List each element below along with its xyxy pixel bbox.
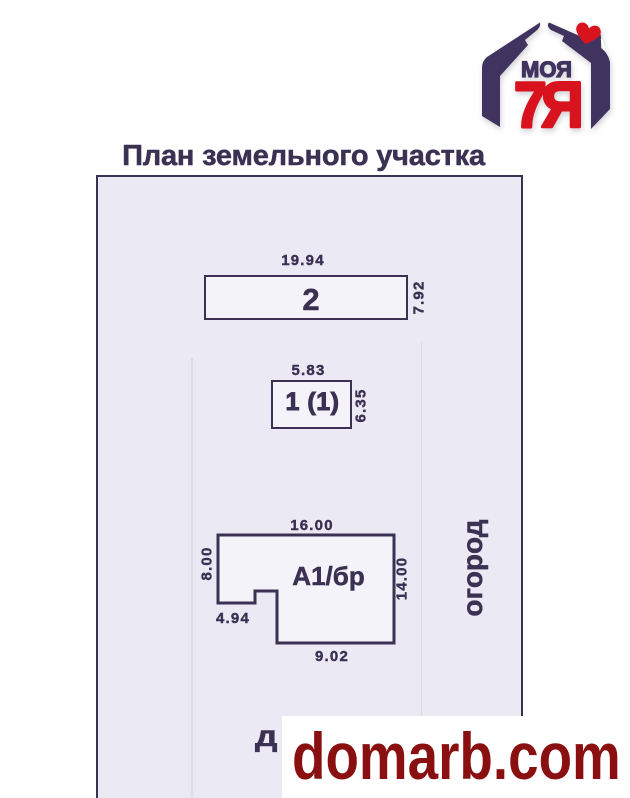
svg-text:7Я: 7Я xyxy=(514,70,580,142)
